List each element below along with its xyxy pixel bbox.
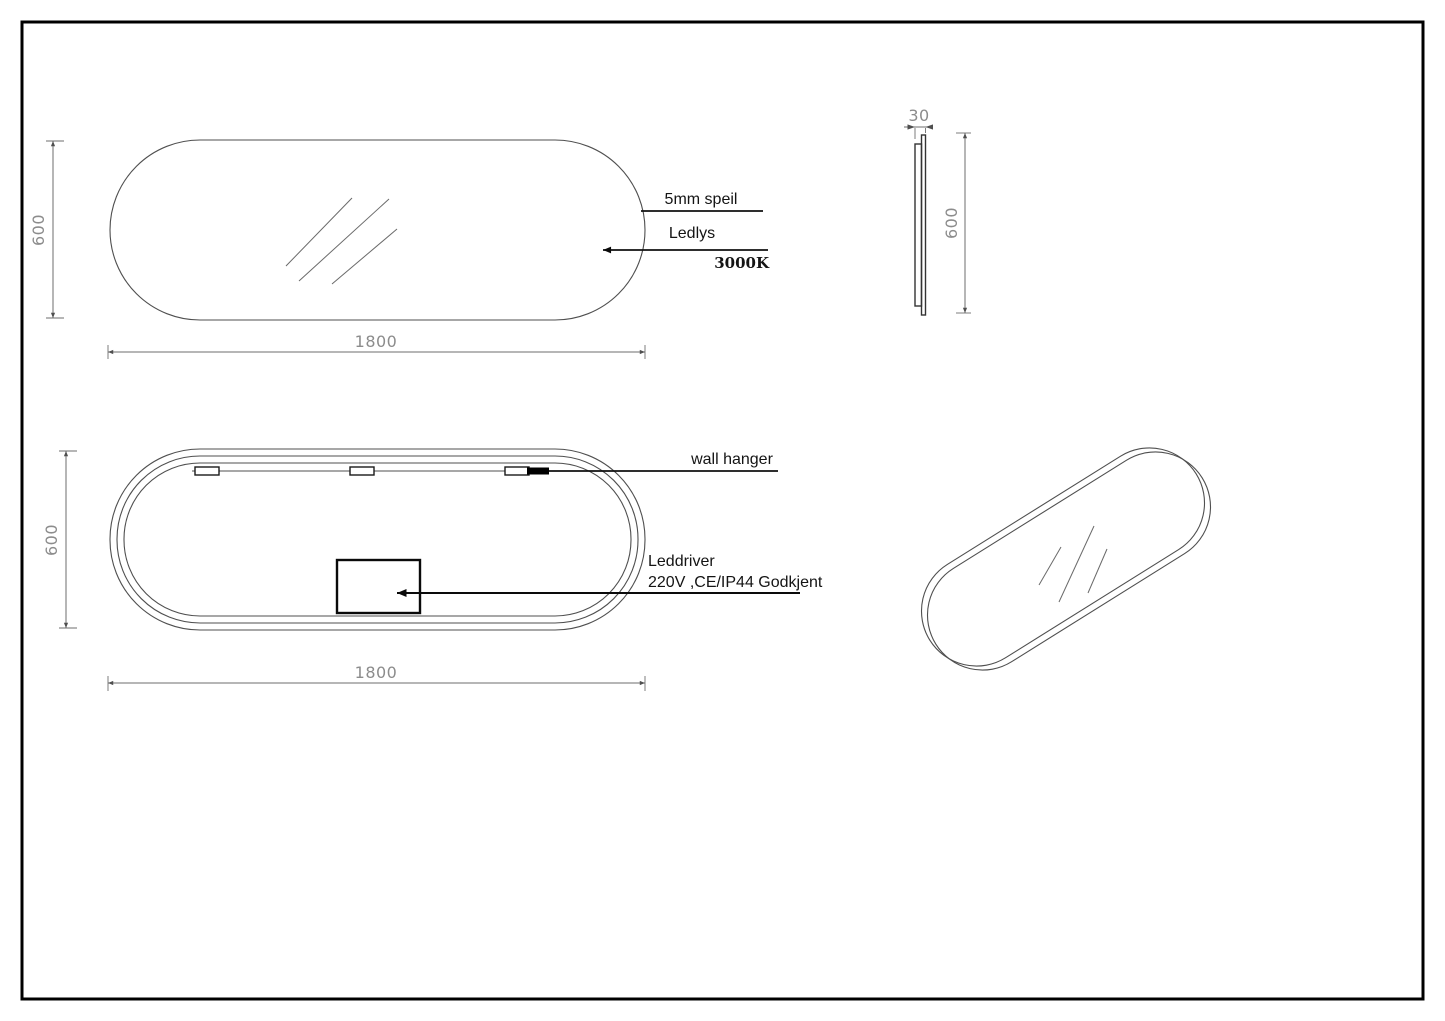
front-width-dim-label: 1800 — [355, 332, 398, 351]
isometric-view — [901, 427, 1232, 691]
callout-glass: 5mm speil — [641, 191, 763, 211]
back-width-dim-label: 1800 — [355, 663, 398, 682]
color-temperature-label: 3000K — [714, 254, 770, 272]
drawing-canvas: 600 1800 5mm speil Ledlys 3000K — [0, 0, 1445, 1021]
driver-callout-line1: Leddriver — [648, 553, 715, 570]
front-width-dimension: 1800 — [108, 332, 645, 359]
led-callout-label: Ledlys — [669, 225, 715, 242]
wall-hanger — [350, 467, 374, 475]
front-height-dimension: 600 — [29, 141, 64, 318]
front-height-dim-label: 600 — [29, 214, 48, 246]
iso-back-edge — [901, 427, 1226, 687]
hanger-rail-group — [192, 467, 550, 475]
wall-hanger — [195, 467, 219, 475]
front-view: 600 1800 5mm speil Ledlys 3000K — [29, 140, 770, 359]
callout-led: Ledlys 3000K — [603, 225, 770, 272]
iso-reflection-marks — [1039, 526, 1107, 602]
driver-callout-line2: 220V ,CE/IP44 Godkjent — [648, 574, 823, 591]
back-width-dimension: 1800 — [108, 663, 645, 691]
led-driver-box — [337, 560, 420, 613]
wall-hanger-callout-label: wall hanger — [690, 451, 774, 468]
iso-front-face — [907, 431, 1232, 691]
reflection-mark — [1039, 547, 1061, 585]
reflection-mark — [286, 198, 352, 266]
side-thickness-dimension: 30 — [904, 106, 933, 139]
side-view: 30 600 — [904, 106, 971, 315]
front-reflection-marks — [286, 198, 397, 284]
reflection-mark — [299, 199, 389, 281]
side-height-dimension: 600 — [942, 133, 971, 313]
drawing-sheet: 600 1800 5mm speil Ledlys 3000K — [0, 0, 1445, 1021]
dimension-arrow — [926, 124, 934, 129]
back-view: wall hanger Leddriver 220V ,CE/IP44 Godk… — [42, 449, 823, 691]
back-outer-outline — [110, 449, 645, 630]
back-height-dim-label: 600 — [42, 524, 61, 556]
dimension-arrow — [908, 124, 916, 129]
back-middle-outline — [117, 456, 638, 623]
side-height-dim-label: 600 — [942, 207, 961, 239]
front-mirror-outline — [110, 140, 645, 320]
side-backing-profile — [915, 144, 922, 306]
sheet-border — [22, 22, 1423, 999]
leader-arrow-block — [527, 468, 549, 475]
reflection-mark — [332, 229, 397, 284]
led-driver-group: Leddriver 220V ,CE/IP44 Godkjent — [337, 553, 823, 613]
side-thickness-dim-label: 30 — [908, 106, 929, 125]
back-height-dimension: 600 — [42, 451, 77, 628]
reflection-mark — [1088, 549, 1107, 593]
glass-callout-label: 5mm speil — [665, 191, 738, 208]
wall-hanger — [505, 467, 529, 475]
